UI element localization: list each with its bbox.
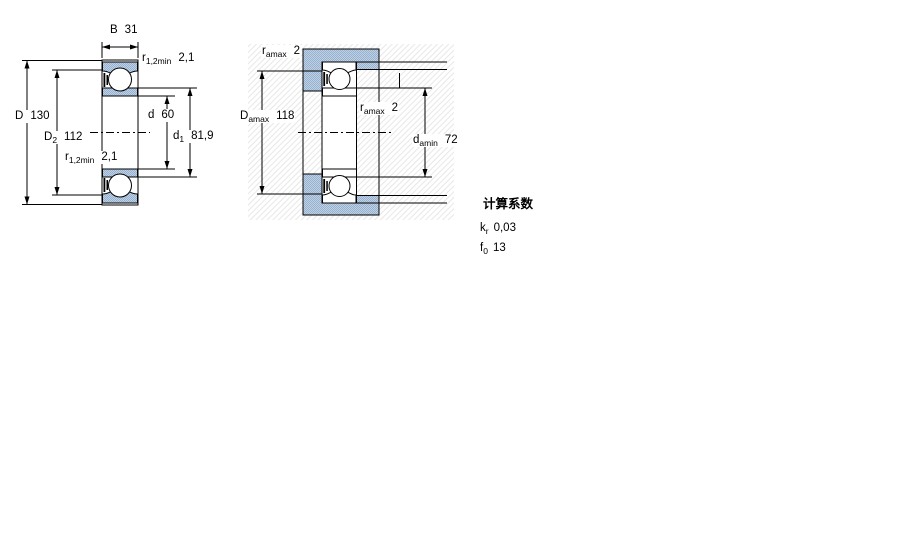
dim-value: 2	[294, 45, 300, 57]
ball	[109, 68, 132, 91]
dim-r12min-top: r1,2min2,1	[141, 52, 195, 65]
dim-subscript: 2	[52, 135, 57, 145]
dim-r12min-bottom: r1,2min2,1	[64, 151, 118, 164]
dim-d1: d181,9	[172, 130, 215, 143]
factor-subscript: r	[486, 226, 489, 236]
dim-symbol: B	[110, 24, 118, 37]
dim-D2: D2112	[43, 131, 83, 144]
bearing-cross-section-figure	[22, 42, 197, 205]
dim-bore-d: d60	[147, 109, 175, 122]
dim-subscript: 1,2min	[69, 155, 95, 165]
factor-f0: f013	[480, 240, 533, 260]
dim-subscript: 1,2min	[146, 56, 172, 66]
dim-value: 2,1	[178, 52, 194, 64]
mounted-bearing-figure	[248, 44, 454, 220]
calculation-factors-title: 计算系数	[483, 193, 533, 212]
dim-value: 130	[30, 110, 49, 122]
diagram-canvas	[0, 0, 900, 560]
factor-kr: kr0,03	[480, 220, 533, 240]
dim-value: 2,1	[101, 151, 117, 163]
calculation-factors: 计算系数 kr0,03 f013	[480, 193, 533, 260]
dim-width-B: B31	[109, 24, 138, 37]
dim-value: 2	[392, 102, 398, 114]
factor-value: 0,03	[494, 222, 516, 234]
bearing-dimension-diagram: B31 r1,2min2,1 D130 D2112 d60 d181,9 r1,…	[0, 0, 900, 560]
ball	[109, 174, 132, 197]
factor-value: 13	[493, 242, 506, 254]
dim-subscript: amax	[364, 106, 385, 116]
dim-value: 118	[276, 110, 294, 122]
dim-damin: damin72	[412, 134, 459, 147]
dim-outer-diameter-D: D130	[14, 110, 51, 123]
dim-subscript: amin	[419, 138, 437, 148]
dim-subscript: 1	[179, 134, 184, 144]
ball	[329, 69, 350, 90]
dim-subscript: amax	[248, 114, 269, 124]
dim-value: 81,9	[191, 130, 213, 142]
dim-symbol: d	[148, 109, 154, 122]
factor-subscript: 0	[483, 246, 488, 256]
dim-ramax-top: ramax2	[261, 45, 301, 58]
ball	[329, 176, 350, 197]
dim-value: 60	[161, 109, 174, 121]
dim-symbol: D	[15, 110, 23, 123]
dim-ramax-mid: ramax2	[359, 102, 399, 115]
dim-subscript: amax	[266, 49, 287, 59]
dim-value: 112	[64, 131, 82, 143]
dim-value: 72	[445, 134, 458, 146]
dim-value: 31	[125, 24, 138, 36]
dim-Damax: Damax118	[239, 110, 295, 123]
